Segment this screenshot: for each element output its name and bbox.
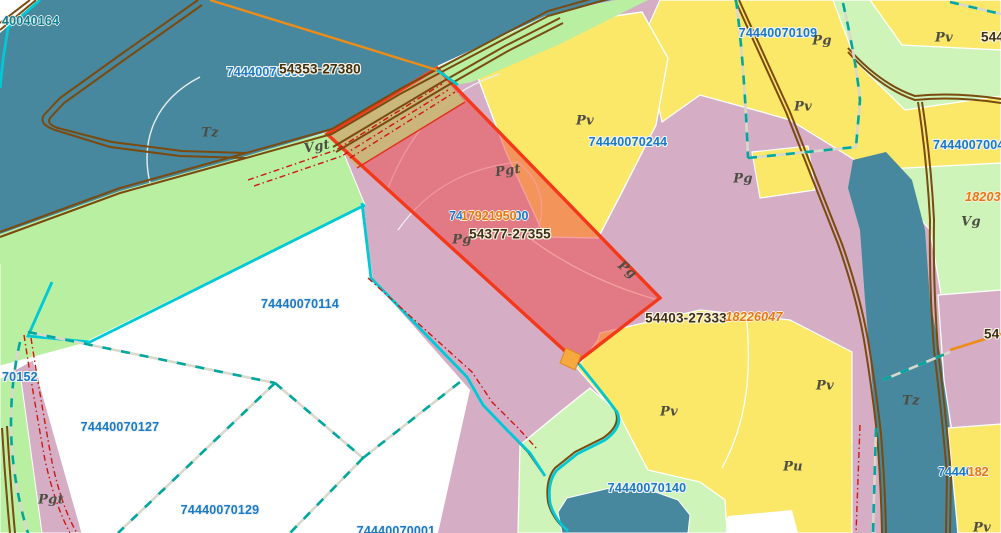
- soil-code-label: Pv: [935, 31, 953, 46]
- survey-number-label: 54: [984, 327, 999, 342]
- survey-number-label: 54377-27355: [469, 227, 551, 242]
- parcel-number-label: 74440070109: [739, 26, 818, 40]
- parcel-number-label: 74440070114: [261, 297, 339, 311]
- soil-code-label: Pu: [783, 460, 803, 475]
- parcel-number-label: 74440070129: [181, 503, 260, 517]
- soil-code-label: Pv: [660, 405, 678, 420]
- soil-code-label: Pv: [816, 379, 834, 394]
- soil-code-label: Pg: [452, 233, 471, 248]
- overlapping-number-labels: 74 17921950 00: [449, 209, 528, 223]
- utility-number-label: 1820395: [965, 190, 1001, 204]
- parcel-number-label: 74440070001: [357, 524, 436, 533]
- survey-number-label: 54403-27333: [645, 311, 727, 326]
- soil-code-label: Tz: [201, 126, 219, 141]
- map-layers: [0, 0, 1001, 533]
- utility-number-label: 18226047: [725, 310, 782, 324]
- soil-code-label: Pv: [973, 521, 991, 533]
- survey-number-label: 544: [981, 30, 1001, 45]
- water-object-number-label: 40040164: [2, 14, 59, 28]
- soil-code-label: Pg: [812, 34, 831, 49]
- parcel-number-label: 74440070041: [933, 138, 1001, 152]
- soil-code-label: Tz: [902, 394, 920, 409]
- parcel-number-label: 74440070140: [608, 481, 687, 495]
- map-canvas[interactable]: 40040164 74440070099 54353-27380 Tz Vgt …: [0, 0, 1001, 533]
- utility-number-label: 17921950: [461, 209, 517, 223]
- parcel-number-label: 70152: [2, 370, 38, 384]
- parcel-number-label: 74440070244: [589, 135, 668, 149]
- soil-code-label: Pv: [576, 114, 594, 129]
- parcel-number-label: 74440070127: [81, 420, 160, 434]
- survey-number-label: 54353-27380: [279, 62, 361, 77]
- soil-code-label: Pv: [794, 100, 812, 115]
- soil-code-label: Pg: [733, 172, 752, 187]
- utility-number-fragment: 182: [968, 465, 989, 479]
- overlapping-number-labels: 74440 182: [938, 465, 987, 479]
- soil-code-label: Vg: [961, 215, 981, 230]
- soil-code-label: Pgt: [38, 493, 64, 508]
